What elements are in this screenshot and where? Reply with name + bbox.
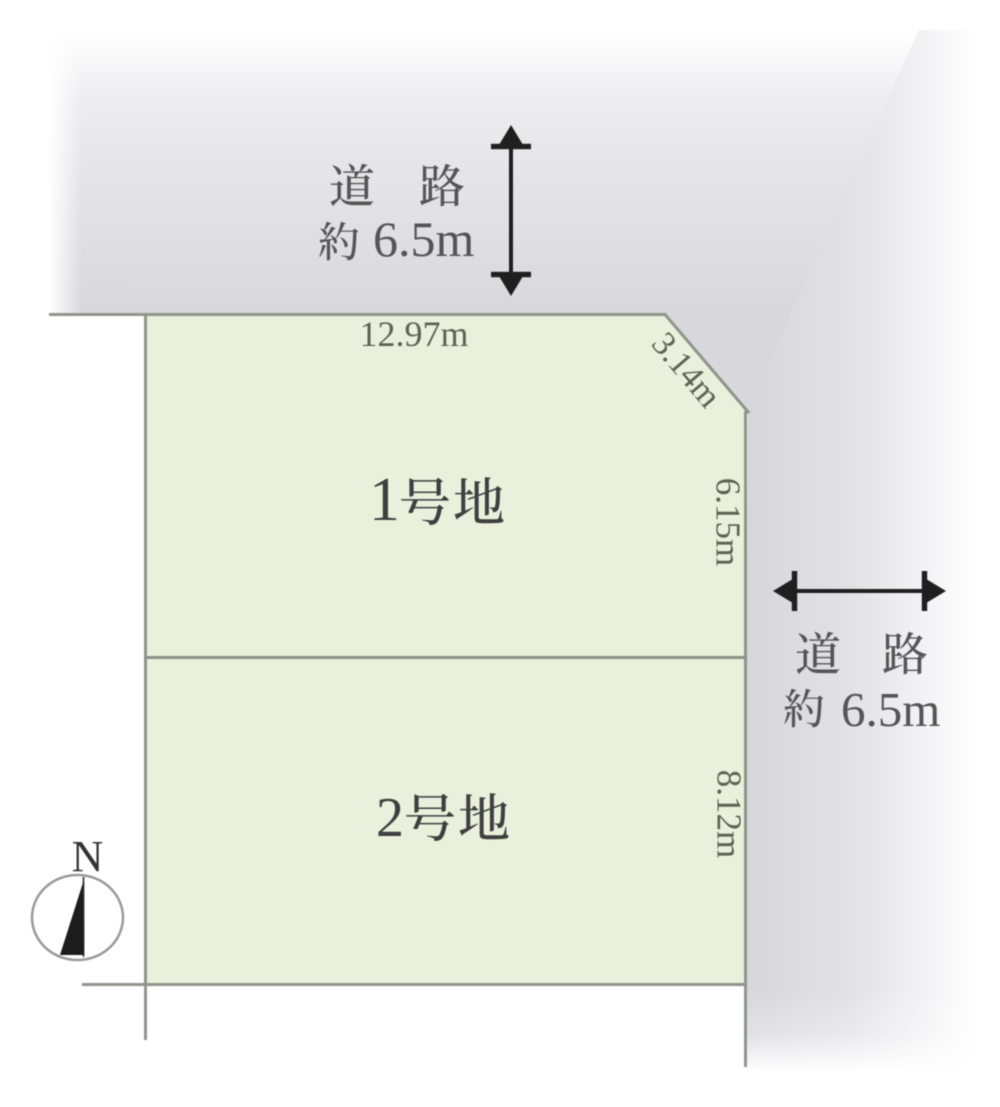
- svg-text:6.15m: 6.15m: [708, 478, 747, 566]
- svg-text:12.97m: 12.97m: [359, 314, 468, 354]
- svg-text:1: 1: [369, 466, 400, 534]
- svg-text:2: 2: [376, 787, 404, 849]
- svg-text:6.5m: 6.5m: [373, 211, 475, 267]
- svg-text:N: N: [72, 832, 104, 881]
- svg-text:6.5m: 6.5m: [841, 682, 940, 737]
- svg-text:8.12m: 8.12m: [709, 770, 748, 858]
